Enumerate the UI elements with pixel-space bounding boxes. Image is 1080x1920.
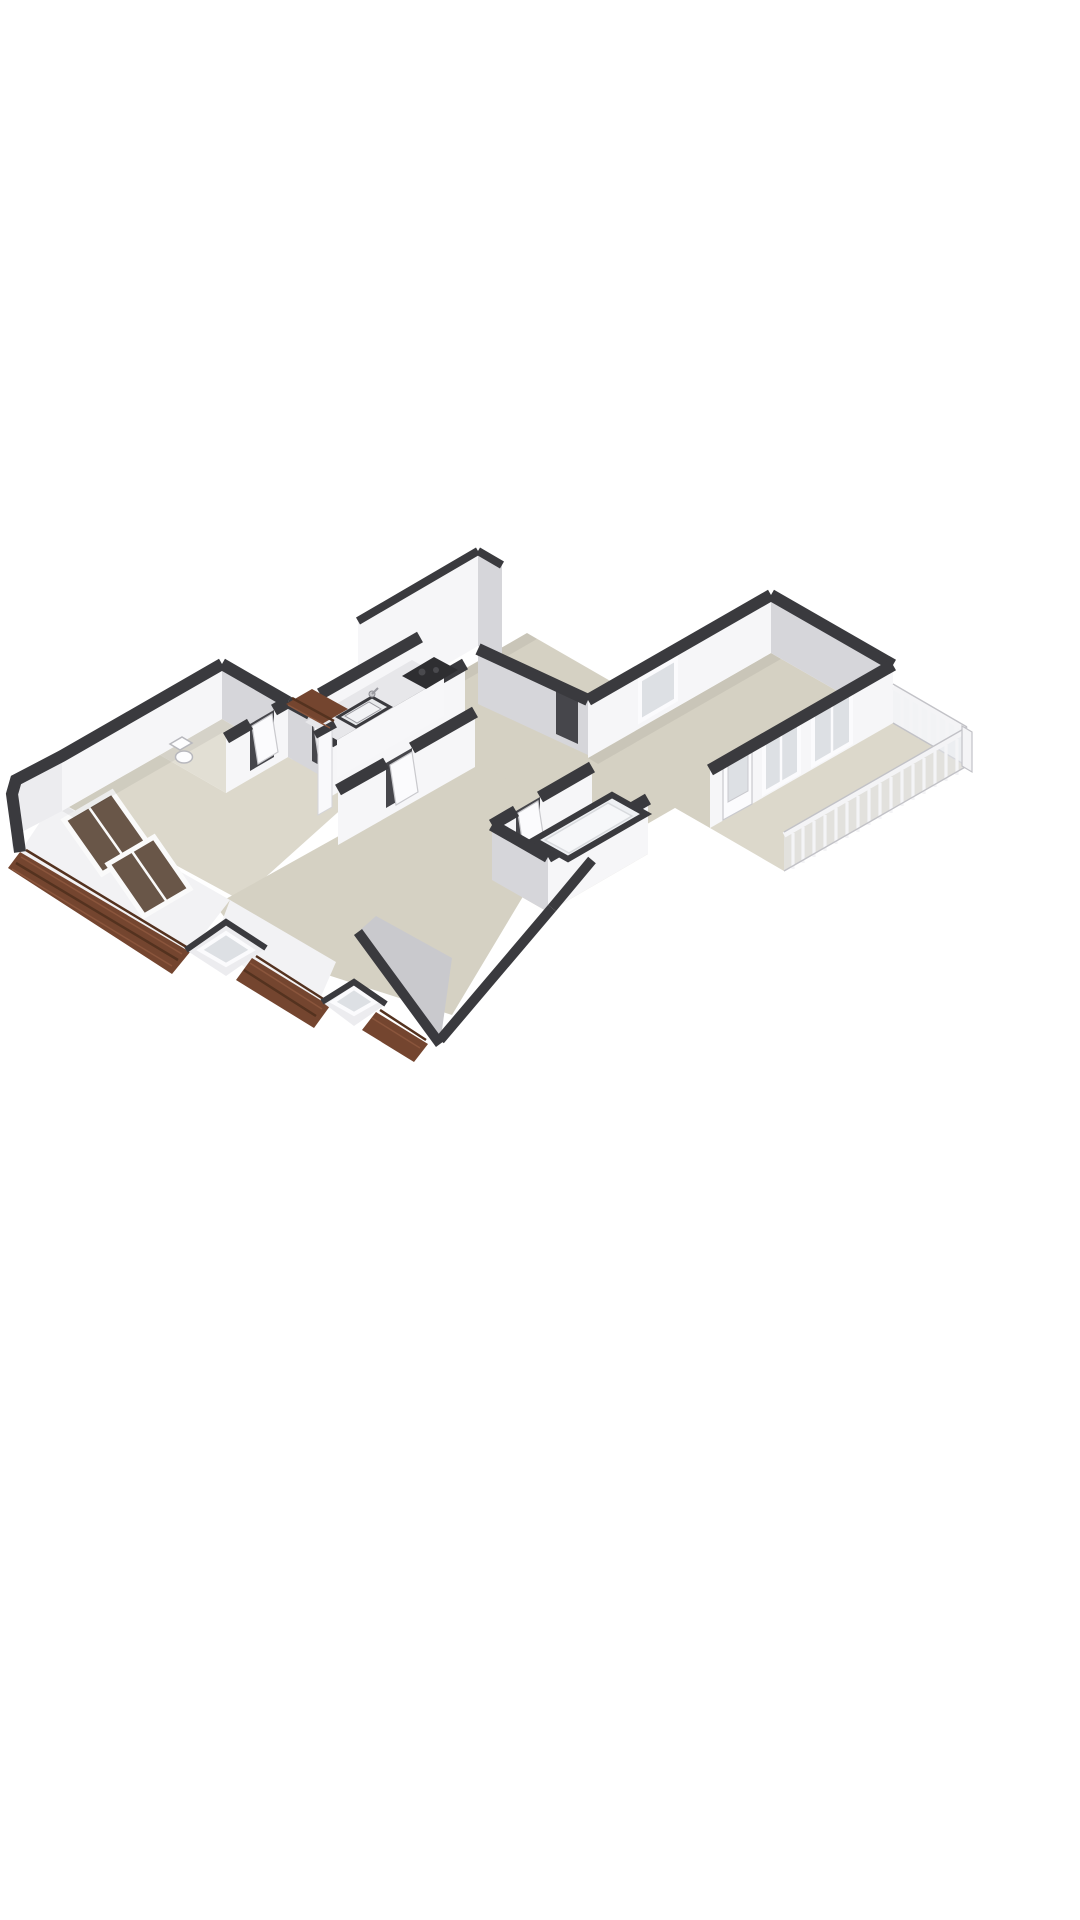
screenshot-canvas (0, 0, 1080, 1920)
railing-corner-post (962, 726, 972, 772)
toilet-bowl (176, 751, 193, 763)
floorplan-3d-render (0, 0, 1080, 1920)
kitchen-column (315, 724, 335, 815)
